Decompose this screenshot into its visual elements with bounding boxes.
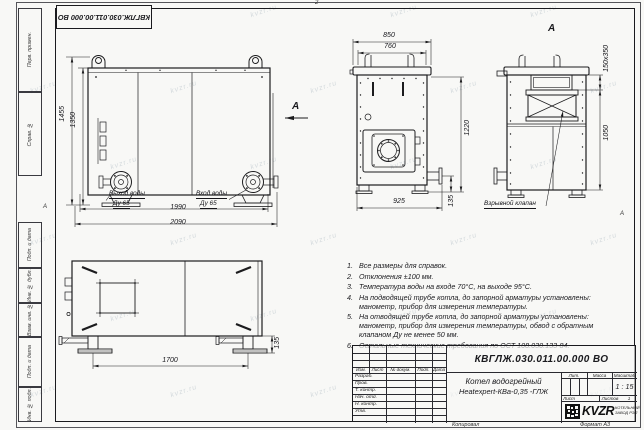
col-data: Дата xyxy=(432,368,446,373)
drawing-sheet: kvzr.rukvzr.rukvzr.rukvzr.rukvzr.rukvzr.… xyxy=(0,0,644,430)
margin-box-perv-primen: Перв. примен. xyxy=(18,8,42,92)
format-label: Формат А3 xyxy=(580,422,610,428)
role-razrab: Разраб. xyxy=(355,375,373,380)
side-dim-925: 925 xyxy=(384,198,414,205)
col-list: Лист xyxy=(369,368,386,373)
margin-box-sprav-no: Справ. № xyxy=(18,92,42,176)
fold-mark-top: 2 xyxy=(315,0,318,6)
kvzr-logo-text: KVZR xyxy=(582,404,614,418)
doc-number: КВГЛЖ.030.011.00.000 ВО xyxy=(446,346,637,372)
front-dim-1350: 1350 xyxy=(70,112,77,128)
product-name-line2: Heatexpert-КВа-0,35 -ГЛЖ xyxy=(446,387,561,396)
role-utv: Утв. xyxy=(355,410,366,415)
inlet-label: Вход воды xyxy=(196,191,227,199)
note-item: 3.Температура воды на входе 70°С, на вых… xyxy=(338,282,638,291)
note-item: 2.Отклонения ±100 мм. xyxy=(338,272,638,281)
top-dimension-lines xyxy=(93,336,275,369)
rotated-docnumber-text: КВГЛЖ.030.011.00.000 ВО xyxy=(58,13,150,22)
note-item: 5.На отводящей трубе котла, до запорной … xyxy=(338,312,638,339)
role-prov: Пров. xyxy=(355,382,368,387)
kopiroval-label: Копировал xyxy=(452,422,479,428)
col-izm: Изм. xyxy=(353,368,369,373)
role-n-kontr: Н. контр. xyxy=(355,403,377,408)
side-body xyxy=(350,54,442,194)
front-dim-1990: 1990 xyxy=(158,204,198,211)
zone-mark-right: А xyxy=(620,211,624,217)
outlet-label: Выход воды xyxy=(109,191,145,199)
margin-box-inv-dubl: Инв. № дубл. xyxy=(18,268,42,303)
explosion-valve-label: Взрывной клапан xyxy=(484,201,536,209)
side-dim-1220: 1220 xyxy=(464,120,471,136)
top-body xyxy=(59,261,267,353)
company-name: КОТЕЛЬНЫЙ ЗАВОД РЭП xyxy=(615,405,640,415)
front-dimension-lines xyxy=(66,57,308,227)
listov-label: Листов xyxy=(600,397,620,402)
role-t-kontr: Т. контр. xyxy=(355,389,376,394)
product-name-line1: Котел водогрейный xyxy=(448,377,559,386)
scale-value: 1 : 15 xyxy=(612,380,637,393)
col-podp: Подп. xyxy=(415,368,432,373)
front-dim-1455: 1455 xyxy=(59,106,66,122)
view-direction-arrow-label: А xyxy=(292,101,299,112)
top-dim-135: 135 xyxy=(274,337,281,349)
side-view-drawing xyxy=(330,25,480,217)
listov-value: 1 xyxy=(623,397,635,402)
title-block: Изм. Лист № докум. Подп. Дата Разраб. Пр… xyxy=(352,345,636,422)
masshtab-header: Масштаб xyxy=(612,374,637,379)
massa-header: Масса xyxy=(587,374,612,379)
rotated-docnumber-stamp: КВГЛЖ.030.011.00.000 ВО xyxy=(56,5,152,29)
side-dim-760: 760 xyxy=(375,43,405,50)
side-dim-135: 135 xyxy=(448,195,455,207)
top-dim-1700: 1700 xyxy=(150,357,190,364)
note-item: 4.На подводящей трубе котла, до запорной… xyxy=(338,293,638,311)
note-item: 1.Все размеры для справок. xyxy=(338,261,638,270)
outlet-dn-label: Ду 65 xyxy=(113,201,130,209)
list-label: Лист xyxy=(562,397,576,402)
side-dim-850: 850 xyxy=(374,32,404,39)
view-a-dim-flue: 150х350 xyxy=(603,45,610,72)
zone-mark-left: А xyxy=(43,204,47,210)
role-nach-otd: Нач. отд. xyxy=(355,396,377,401)
front-dim-2090: 2090 xyxy=(158,219,198,226)
margin-box-podp-data-1: Подп. и дата xyxy=(18,222,42,268)
margin-box-inv-podl: Инв. № подл. xyxy=(18,387,42,422)
view-a-title: А xyxy=(548,23,555,34)
lit-header: Лит. xyxy=(561,374,587,379)
view-a-drawing xyxy=(480,25,615,220)
col-docum: № докум. xyxy=(386,368,415,373)
front-body xyxy=(88,56,278,207)
kvzr-logo-mark xyxy=(565,404,580,419)
view-a-dim-1050: 1050 xyxy=(603,125,610,141)
margin-box-podp-data-2: Подп. и дата xyxy=(18,337,42,387)
view-a-body xyxy=(494,55,589,198)
inlet-dn-label: Ду 65 xyxy=(200,201,217,209)
margin-box-vzam-inv: Взам. инв. № xyxy=(18,303,42,337)
technical-notes: 1.Все размеры для справок. 2.Отклонения … xyxy=(338,261,638,352)
